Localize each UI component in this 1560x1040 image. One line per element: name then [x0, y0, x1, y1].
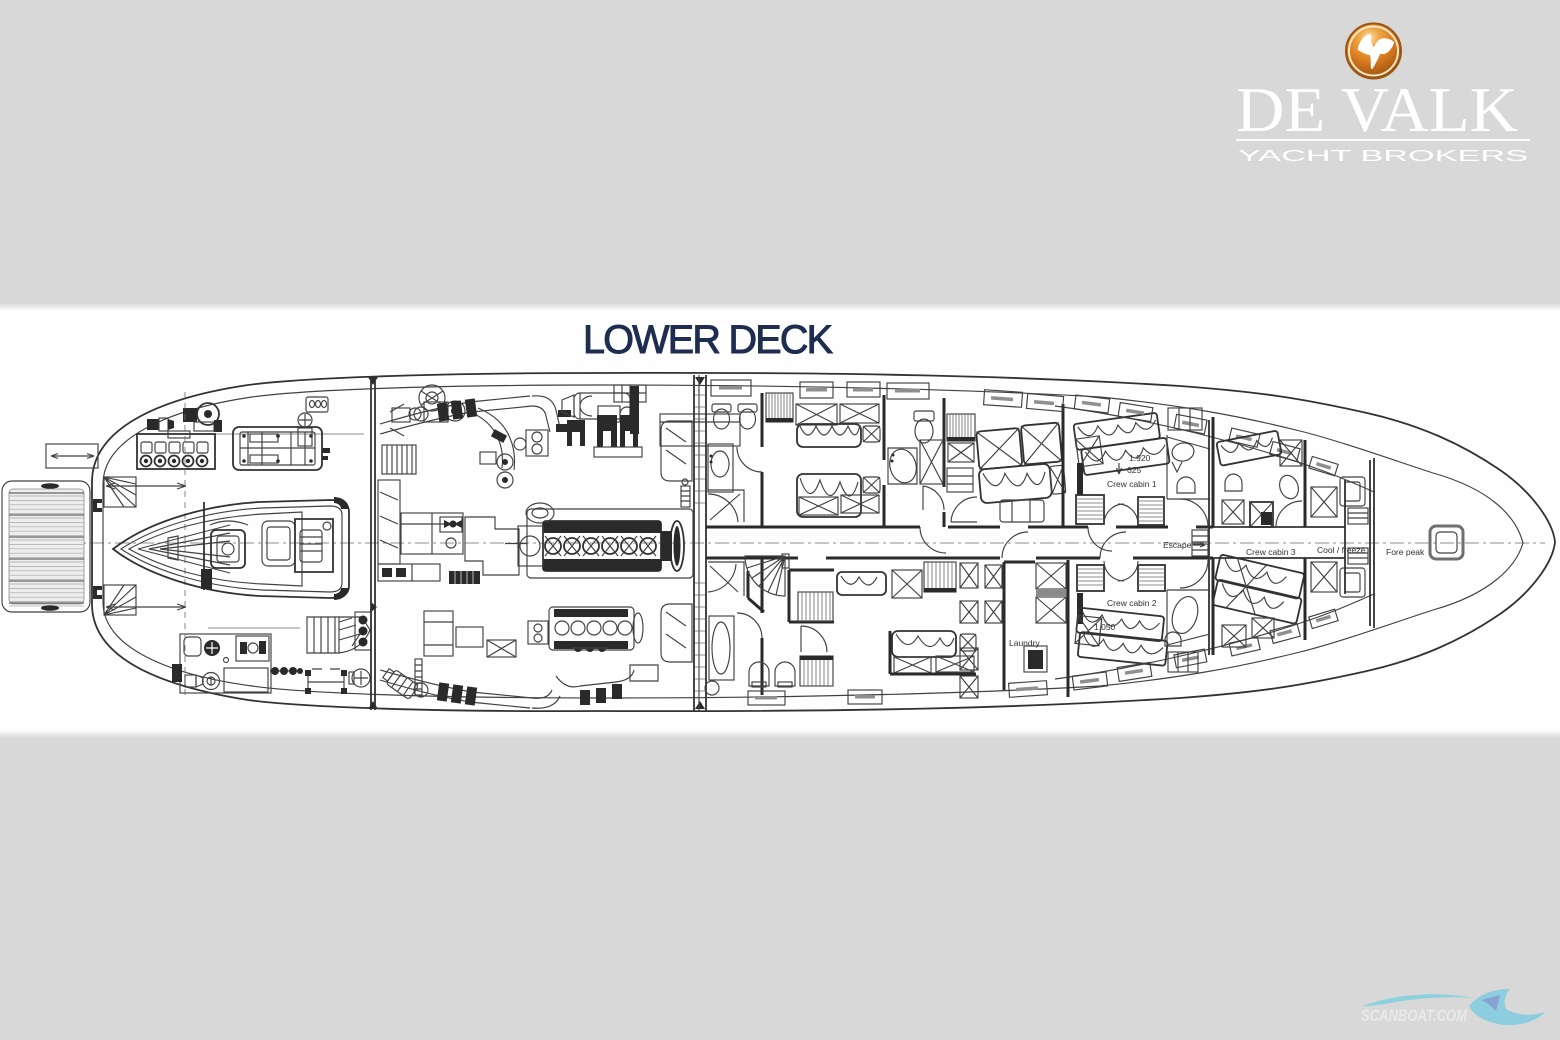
svg-text:625: 625: [1127, 465, 1141, 475]
svg-text:1.920: 1.920: [1129, 453, 1151, 463]
svg-text:DE VALK: DE VALK: [1236, 75, 1518, 145]
svg-text:1.050: 1.050: [1094, 622, 1116, 632]
svg-text:Laundry: Laundry: [1009, 638, 1040, 648]
svg-text:Escape: Escape: [1163, 540, 1192, 550]
svg-text:Fore peak: Fore peak: [1386, 547, 1425, 557]
svg-text:YACHT BROKERS: YACHT BROKERS: [1238, 148, 1528, 165]
svg-text:Crew cabin 3: Crew cabin 3: [1246, 547, 1296, 557]
svg-text:LOWER DECK: LOWER DECK: [583, 318, 833, 362]
svg-text:Crew cabin 1: Crew cabin 1: [1107, 479, 1157, 489]
svg-text:Crew cabin 2: Crew cabin 2: [1107, 598, 1157, 608]
svg-text:Cool / freeze: Cool / freeze: [1317, 545, 1365, 555]
svg-text:SCANBOAT.COM: SCANBOAT.COM: [1361, 1006, 1468, 1025]
